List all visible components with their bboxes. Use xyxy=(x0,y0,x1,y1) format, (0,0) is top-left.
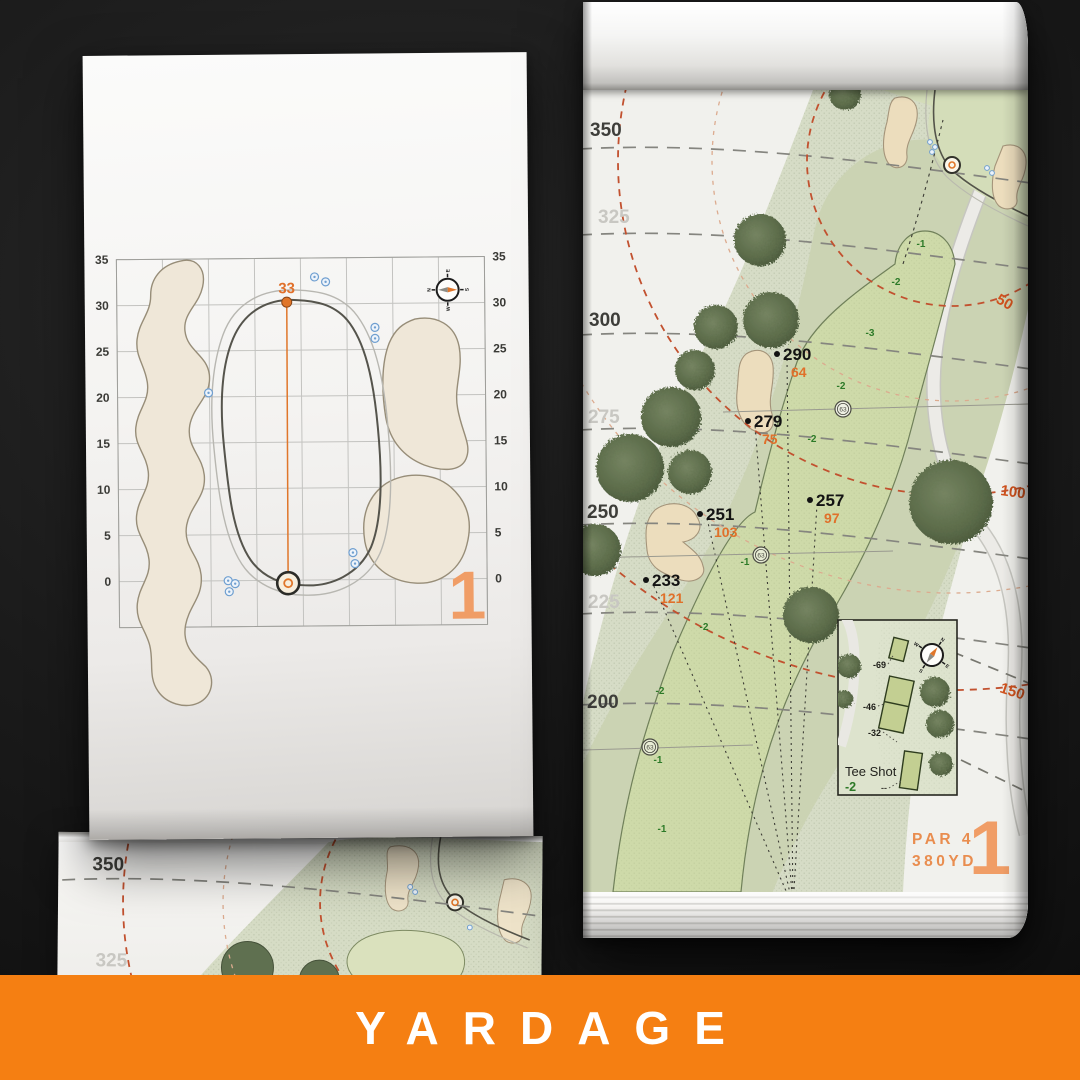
svg-text:325: 325 xyxy=(598,207,630,228)
svg-text:100: 100 xyxy=(999,482,1026,502)
svg-text:121: 121 xyxy=(660,590,684,606)
svg-text:-2: -2 xyxy=(700,622,709,633)
tee-offset: -46 xyxy=(863,702,876,712)
svg-text:-2: -2 xyxy=(656,686,665,697)
pin-depth-line xyxy=(275,297,300,594)
banner-label: YARDAGE xyxy=(331,1001,749,1055)
svg-text:290: 290 xyxy=(783,345,811,364)
svg-text:-1: -1 xyxy=(917,239,926,250)
svg-text:275: 275 xyxy=(588,407,620,428)
tee-offset: -69 xyxy=(873,660,886,670)
svg-text:75: 75 xyxy=(762,431,778,447)
compass-w: W xyxy=(446,306,452,311)
compass-n: N xyxy=(427,288,433,292)
svg-text:20: 20 xyxy=(493,387,507,401)
left-page: 33 N E S W xyxy=(83,52,534,840)
hole-info: PAR 4 380YD 1 xyxy=(912,806,1011,891)
tee-offset: -- xyxy=(881,783,887,793)
svg-text:233: 233 xyxy=(652,571,680,590)
svg-text:-2: -2 xyxy=(808,434,817,445)
hole-number: 1 xyxy=(969,806,1011,891)
svg-text:250: 250 xyxy=(587,502,619,523)
svg-text:200: 200 xyxy=(587,692,619,713)
svg-text:-1: -1 xyxy=(741,557,750,568)
compass: N E S W xyxy=(426,268,470,311)
yardage-banner: YARDAGE xyxy=(0,975,1080,1080)
svg-text:103: 103 xyxy=(714,524,738,540)
svg-text:251: 251 xyxy=(706,505,734,524)
svg-text:35: 35 xyxy=(95,253,109,267)
bottom-page-map: 350 325 xyxy=(57,832,542,982)
tee-shot-value: -2 xyxy=(845,780,856,794)
page-curl-top xyxy=(583,2,1028,90)
tee-shot-title: Tee Shot xyxy=(845,764,897,779)
svg-text:350: 350 xyxy=(590,120,622,141)
svg-text:225: 225 xyxy=(588,592,620,613)
right-page: 63 63 63 xyxy=(583,2,1028,938)
svg-text:-2: -2 xyxy=(892,277,901,288)
par-label: PAR 4 xyxy=(912,831,974,848)
svg-text:64: 64 xyxy=(791,364,807,380)
svg-text:10: 10 xyxy=(494,479,508,493)
hole-map: 63 63 63 xyxy=(583,90,1028,892)
svg-text:-1: -1 xyxy=(658,824,667,835)
svg-text:63: 63 xyxy=(646,744,654,751)
svg-text:0: 0 xyxy=(495,571,502,585)
svg-text:20: 20 xyxy=(96,391,110,405)
bottom-map-terrain xyxy=(197,835,542,982)
yardage-label: 380YD xyxy=(912,853,977,870)
svg-text:5: 5 xyxy=(104,529,111,543)
green-detail-map: 33 N E S W xyxy=(83,52,534,840)
axis-labels-left: 35 30 25 20 15 10 5 0 xyxy=(95,253,112,589)
svg-text:97: 97 xyxy=(824,510,840,526)
yardage-book-mockup: 350 325 xyxy=(0,0,1080,1080)
tee-offset: -32 xyxy=(868,728,881,738)
page-stack-edges xyxy=(583,892,1028,938)
svg-text:-2: -2 xyxy=(837,381,846,392)
svg-text:63: 63 xyxy=(757,552,765,559)
svg-text:0: 0 xyxy=(104,575,111,589)
green-edge-dot xyxy=(282,297,292,307)
compass-s: S xyxy=(465,287,471,291)
hole-number: 1 xyxy=(448,557,486,633)
bottom-left-page: 350 325 xyxy=(57,832,542,982)
svg-text:25: 25 xyxy=(493,341,507,355)
distance-tick: 325 xyxy=(95,950,127,971)
pin-depth-value: 33 xyxy=(278,280,295,297)
distance-tick: 350 xyxy=(92,854,124,875)
svg-text:10: 10 xyxy=(97,483,111,497)
svg-text:150: 150 xyxy=(998,680,1027,704)
axis-labels-right: 35 30 25 20 15 10 5 0 xyxy=(492,249,509,585)
svg-text:15: 15 xyxy=(97,437,111,451)
svg-text:25: 25 xyxy=(96,345,110,359)
tee-shot-inset: -69 -46 -32 -- Tee Shot -2 xyxy=(835,616,962,795)
svg-text:15: 15 xyxy=(494,433,508,447)
svg-text:279: 279 xyxy=(754,412,782,431)
svg-text:5: 5 xyxy=(495,525,502,539)
svg-text:63: 63 xyxy=(839,406,847,413)
svg-text:-3: -3 xyxy=(866,328,875,339)
pin-marker xyxy=(277,572,299,594)
pin-marker xyxy=(447,894,463,910)
svg-text:-1: -1 xyxy=(654,755,663,766)
compass-e: E xyxy=(445,268,451,272)
svg-text:30: 30 xyxy=(493,295,507,309)
svg-text:30: 30 xyxy=(95,299,109,313)
svg-text:35: 35 xyxy=(492,249,506,263)
svg-text:257: 257 xyxy=(816,491,844,510)
svg-text:300: 300 xyxy=(589,310,621,331)
